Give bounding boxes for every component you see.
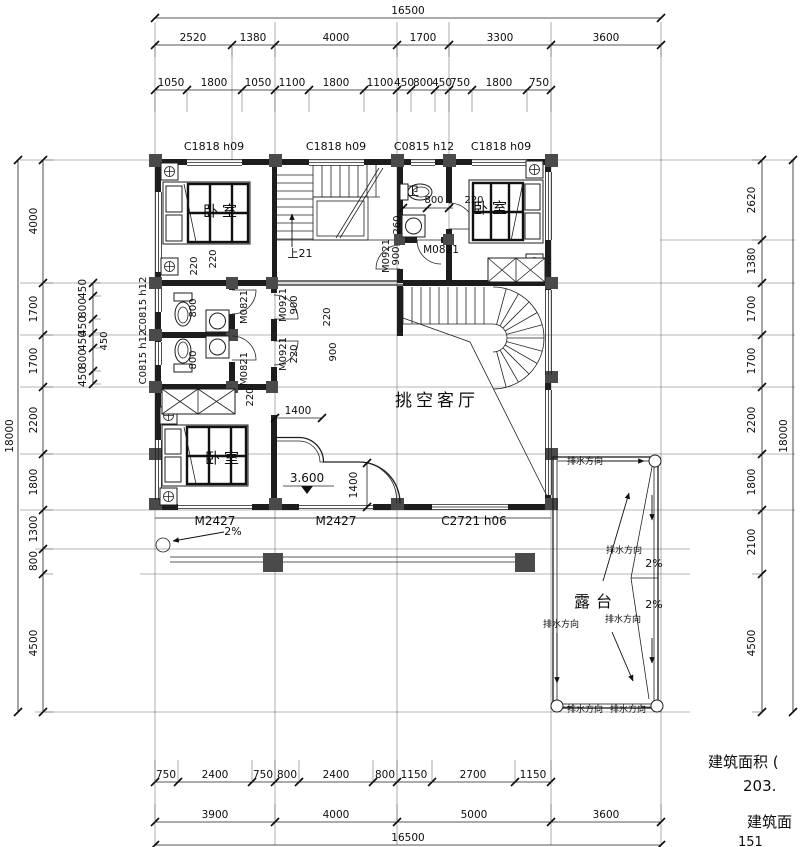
dim-label: 1700 (28, 348, 40, 375)
dim-label: 5000 (461, 809, 488, 821)
slope-label: 2% (224, 525, 241, 538)
window-label: C2721 h06 (441, 514, 507, 528)
window-label: C0815 h12 (138, 330, 149, 385)
dim-inner: 260 (392, 215, 403, 234)
bed-bottomleft (160, 389, 248, 505)
note-building-area-4: 151 (738, 835, 763, 847)
door-label: M0921 (278, 337, 289, 371)
dim-label: 2200 (28, 407, 40, 434)
dim-inner: 220 (245, 387, 256, 406)
dim-label: 750 (529, 77, 549, 89)
dim-label: 800 (77, 298, 89, 318)
drain-direction-label: 排水方向 (606, 544, 642, 556)
dim-label: 1380 (746, 248, 758, 275)
dim-row-bottom-detail: 75024007508002400800115027001150 (151, 760, 555, 786)
dim-label: 3900 (202, 809, 229, 821)
dim-row-top-total: 16500 (151, 5, 665, 22)
room-label-living-void: 挑空客厅 (395, 391, 479, 411)
dim-label: 2100 (746, 529, 758, 556)
staircase-main (277, 165, 383, 247)
dim-label: 1700 (746, 296, 758, 323)
dim-label: 1380 (240, 32, 267, 44)
dim-label: 16500 (391, 5, 424, 17)
door-label: M0821 (423, 244, 459, 256)
dim-inner: 450 (99, 331, 110, 350)
floor-plan: 1650025201380400017003300360010501800105… (0, 0, 800, 847)
slope-label: 2% (645, 557, 662, 570)
drain-direction-label: 排水方向 (567, 703, 603, 715)
dim-label: 1100 (367, 77, 394, 89)
dim-inner: 220 (464, 195, 483, 206)
dim-label: 1100 (279, 77, 306, 89)
drain-direction-label: 排水方向 (605, 613, 641, 625)
dim-inner: 900 (289, 295, 300, 314)
dim-label: 4000 (323, 809, 350, 821)
dim-inner: 900 (328, 342, 339, 361)
dim-label: 4000 (323, 32, 350, 44)
dim-label: 3600 (593, 809, 620, 821)
dim-inner: 1400 (285, 405, 312, 417)
dim-inner: 220 (189, 256, 200, 275)
window-label: C0815 h12 (394, 140, 454, 153)
sheet-notes: 建筑面积 (203.建筑面151 (708, 753, 792, 847)
dim-label: 800 (28, 551, 40, 571)
slope-label: 2% (645, 598, 662, 611)
dim-label: 2700 (460, 769, 487, 781)
elevation-label: 3.600 (290, 471, 324, 485)
dim-label: 1800 (323, 77, 350, 89)
dim-label: 1800 (28, 469, 40, 496)
dim-label: 450 (77, 279, 89, 299)
dim-label: 1700 (746, 348, 758, 375)
window-label: C1818 h09 (184, 140, 244, 153)
dim-label: 800 (413, 77, 433, 89)
dim-inner: 220 (289, 344, 300, 363)
room-label-bath: 卫 (407, 184, 419, 198)
drawing-sheet: 1650025201380400017003300360010501800105… (0, 0, 800, 847)
dim-label: 1150 (401, 769, 428, 781)
door-label: M0921 (278, 288, 289, 322)
dim-label: 1050 (245, 77, 272, 89)
dim-row-bottom-total: 16500 (151, 832, 665, 847)
dim-label: 18000 (778, 419, 790, 452)
dim-row-bottom-main: 3900400050003600 (151, 804, 665, 826)
drain-direction-label: 排水方向 (567, 455, 603, 467)
dim-label: 450 (77, 331, 89, 351)
dim-label: 800 (277, 769, 297, 781)
bed-topright (469, 161, 545, 282)
dim-row-top-detail: 1050180010501100180011004508004507501800… (151, 77, 555, 112)
dim-label: 1050 (158, 77, 185, 89)
dim-label: 4500 (28, 630, 40, 657)
dim-label: 1800 (201, 77, 228, 89)
note-building-area-3: 建筑面 (747, 813, 792, 831)
dim-label: 450 (394, 77, 414, 89)
door-label: M0821 (239, 352, 250, 386)
dim-label: 4000 (28, 208, 40, 235)
dim-col-dim-1400-v (363, 459, 371, 511)
window-label: C0815 h12 (138, 277, 149, 332)
room-label-bedroom-topleft: 卧室 (203, 202, 241, 220)
dim-inner: 220 (322, 307, 333, 326)
dim-inner: 900 (391, 246, 402, 265)
dim-label: 750 (156, 769, 176, 781)
drain-direction-label: 排水方向 (610, 703, 646, 715)
dim-label: 2520 (180, 32, 207, 44)
dim-inner: 800 (424, 195, 443, 206)
dim-label: 16500 (391, 832, 424, 844)
dim-col-left-total: 18000 (4, 156, 22, 716)
dim-label: 1150 (520, 769, 547, 781)
dim-inner: 800 (188, 298, 199, 317)
dim-label: 18000 (4, 419, 16, 452)
door-label: M2427 (316, 514, 357, 528)
dim-col-left-inner: 450800450450800450 (77, 279, 101, 388)
dim-label: 1300 (28, 516, 40, 543)
room-label-bedroom-bottomleft: 卧室 (205, 449, 243, 467)
dim-label: 3600 (593, 32, 620, 44)
drain-direction-label: 排水方向 (543, 618, 579, 630)
dim-label: 2400 (323, 769, 350, 781)
window-label: C1818 h09 (306, 140, 366, 153)
dim-inner: 800 (188, 350, 199, 369)
dim-label: 1800 (486, 77, 513, 89)
dim-label: 450 (77, 367, 89, 387)
dim-label: 1800 (746, 469, 758, 496)
door-label: M0821 (239, 290, 250, 324)
dim-inner: 220 (208, 249, 219, 268)
dim-label: 1700 (410, 32, 437, 44)
dim-label: 1700 (28, 296, 40, 323)
dim-label: 2200 (746, 407, 758, 434)
dim-inner: 1400 (348, 472, 360, 499)
dim-row-top-main: 252013804000170033003600 (151, 32, 665, 57)
dim-label: 4500 (746, 630, 758, 657)
dim-label: 750 (450, 77, 470, 89)
stair-up-label: 上21 (288, 247, 313, 260)
note-building-area-1: 建筑面积 ( (708, 753, 779, 771)
dim-label: 800 (375, 769, 395, 781)
room-label-terrace: 露台 (574, 592, 618, 611)
dim-label: 2400 (202, 769, 229, 781)
terrace (551, 455, 663, 712)
dim-col-left-chain: 4000170017002200180013008004500 (28, 156, 53, 716)
note-building-area-2: 203. (743, 777, 776, 795)
dim-label: 3300 (487, 32, 514, 44)
dim-label: 800 (77, 349, 89, 369)
dim-label: 2620 (746, 187, 758, 214)
window-label: C1818 h09 (471, 140, 531, 153)
dim-label: 750 (253, 769, 273, 781)
